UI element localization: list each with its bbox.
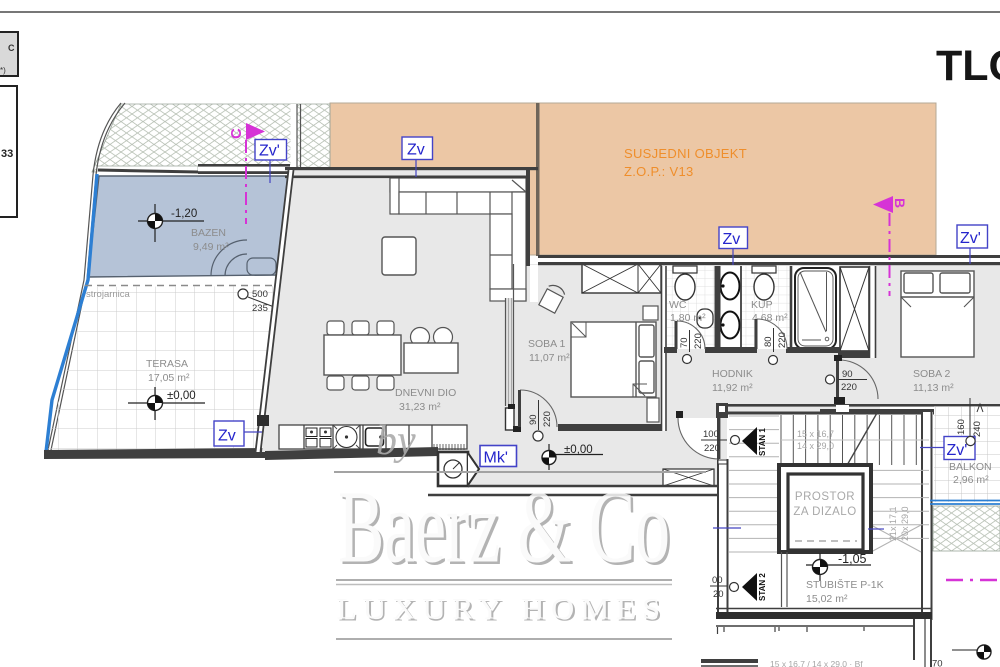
svg-text:STAN 1: STAN 1 — [758, 428, 767, 456]
svg-text:160: 160 — [956, 419, 967, 435]
svg-text:Zv': Zv' — [947, 442, 968, 459]
svg-text:00: 00 — [712, 575, 723, 586]
svg-text:11,13 m²: 11,13 m² — [913, 382, 954, 394]
svg-text:2,96 m²: 2,96 m² — [953, 474, 989, 486]
svg-text:15 x 16,7 / 14 x 29,0 · Bf: 15 x 16,7 / 14 x 29,0 · Bf — [770, 659, 863, 667]
svg-text:235: 235 — [252, 303, 268, 314]
svg-text:strojarnica: strojarnica — [86, 289, 131, 300]
svg-text:BAZEN: BAZEN — [191, 227, 226, 239]
svg-text:±0,00: ±0,00 — [564, 444, 593, 456]
svg-text:B: B — [892, 198, 908, 208]
svg-text:TLOCRT: TLOCRT — [936, 42, 1000, 90]
svg-text:Zv: Zv — [407, 142, 425, 159]
svg-text:STAN 2: STAN 2 — [758, 573, 767, 601]
svg-text:500: 500 — [252, 289, 268, 300]
svg-text:15,02 m²: 15,02 m² — [806, 593, 848, 605]
svg-text:9,49 m²: 9,49 m² — [193, 241, 229, 253]
svg-text:±0,00: ±0,00 — [167, 390, 196, 402]
svg-text:C: C — [228, 128, 245, 139]
svg-text:Zv: Zv — [723, 231, 741, 248]
svg-text:Zv: Zv — [218, 428, 236, 445]
svg-text:-1,05: -1,05 — [838, 552, 867, 566]
svg-text:90: 90 — [842, 369, 853, 380]
svg-text:DNEVNI DIO: DNEVNI DIO — [395, 387, 456, 399]
svg-text:100: 100 — [703, 429, 719, 440]
svg-text:STUBIŠTE P-1K: STUBIŠTE P-1K — [806, 578, 884, 591]
svg-text:HODNIK: HODNIK — [712, 368, 753, 380]
svg-text:-1,20: -1,20 — [171, 208, 197, 220]
svg-text:*): *) — [0, 66, 6, 75]
svg-text:Mk': Mk' — [484, 450, 508, 467]
svg-text:LUXURY HOMES: LUXURY HOMES — [337, 593, 667, 626]
svg-text:17,05 m²: 17,05 m² — [148, 372, 190, 384]
svg-text:Z.O.P.: V13: Z.O.P.: V13 — [624, 164, 694, 179]
svg-text:21x 17,1: 21x 17,1 — [888, 506, 898, 541]
svg-text:11,92 m²: 11,92 m² — [712, 382, 753, 394]
svg-text:Zv': Zv' — [259, 143, 280, 160]
svg-text:31,23 m²: 31,23 m² — [399, 401, 441, 413]
svg-text:SOBA 1: SOBA 1 — [528, 338, 566, 350]
svg-text:220: 220 — [693, 333, 704, 349]
svg-text:11,07 m²: 11,07 m² — [529, 352, 570, 364]
svg-text:ZA DIZALO: ZA DIZALO — [793, 506, 856, 518]
svg-text:WC: WC — [669, 299, 687, 311]
svg-text:20x 29,0: 20x 29,0 — [900, 506, 910, 541]
svg-text:70: 70 — [932, 659, 943, 667]
svg-text:BALKON: BALKON — [949, 461, 992, 473]
svg-text:KUP: KUP — [751, 299, 773, 311]
svg-text:20: 20 — [713, 589, 724, 600]
svg-text:by: by — [376, 418, 416, 464]
svg-text:220: 220 — [542, 411, 553, 427]
svg-text:Baerz & Co: Baerz & Co — [338, 470, 670, 585]
svg-text:70: 70 — [679, 337, 690, 348]
svg-text:15 x 16,7: 15 x 16,7 — [797, 429, 834, 439]
svg-text:Zv': Zv' — [960, 230, 981, 247]
svg-text:C: C — [8, 43, 15, 53]
svg-text:220: 220 — [704, 443, 720, 454]
svg-text:33: 33 — [1, 148, 13, 160]
svg-text:220: 220 — [841, 382, 857, 393]
svg-text:SUSJEDNI OBJEKT: SUSJEDNI OBJEKT — [624, 146, 747, 161]
svg-text:240: 240 — [972, 421, 983, 437]
svg-text:PROSTOR: PROSTOR — [795, 491, 855, 503]
svg-text:SOBA 2: SOBA 2 — [913, 368, 951, 380]
svg-text:80: 80 — [763, 336, 774, 347]
svg-text:90: 90 — [528, 414, 539, 425]
svg-text:14 x 29,0: 14 x 29,0 — [797, 441, 834, 451]
svg-text:220: 220 — [777, 332, 788, 348]
svg-text:TERASA: TERASA — [146, 358, 188, 370]
